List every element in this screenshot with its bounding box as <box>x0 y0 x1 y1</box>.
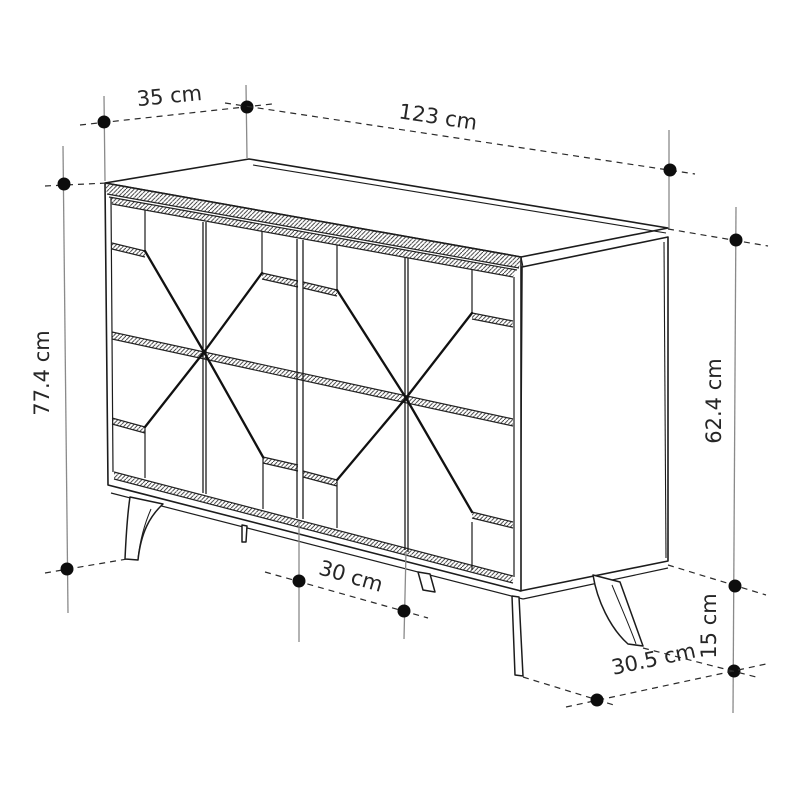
dimension-label-leg-height: 15 cm <box>697 593 721 658</box>
dimension-endpoint-dot <box>398 605 411 618</box>
dimension-endpoint-dot <box>664 164 677 177</box>
dimension-label-body-height: 62.4 cm <box>702 358 726 443</box>
dimension-label-depth: 35 cm <box>136 81 203 111</box>
dimension-endpoint-dot <box>61 563 74 576</box>
dimension-endpoint-dot <box>729 580 742 593</box>
dimension-endpoint-dot <box>293 575 306 588</box>
diagram-canvas: 35 cm 123 cm 77.4 cm 62.4 cm 15 cm <box>0 0 800 800</box>
back-middle-leg <box>418 572 435 592</box>
right-side-leg <box>593 575 643 646</box>
dimension-endpoint-dot <box>730 234 743 247</box>
body-height-axis <box>733 207 736 713</box>
cabinet-side-panel <box>520 237 668 591</box>
dimension-label-width: 123 cm <box>397 99 478 135</box>
furniture-dimension-diagram: 35 cm 123 cm 77.4 cm 62.4 cm 15 cm <box>0 0 800 800</box>
dimension-endpoint-dot <box>58 178 71 191</box>
dimension-label-door-spacing: 30 cm <box>316 556 385 597</box>
dimension-endpoint-dot <box>591 694 604 707</box>
dimension-label-leg-depth: 30.5 cm <box>609 639 698 680</box>
dimension-endpoint-dot <box>98 116 111 129</box>
dimension-label-total-height: 77.4 cm <box>30 330 54 415</box>
back-left-leg <box>242 525 247 542</box>
total-height-axis <box>63 146 68 613</box>
front-right-leg <box>512 596 523 676</box>
cabinet-drawing <box>105 159 668 676</box>
